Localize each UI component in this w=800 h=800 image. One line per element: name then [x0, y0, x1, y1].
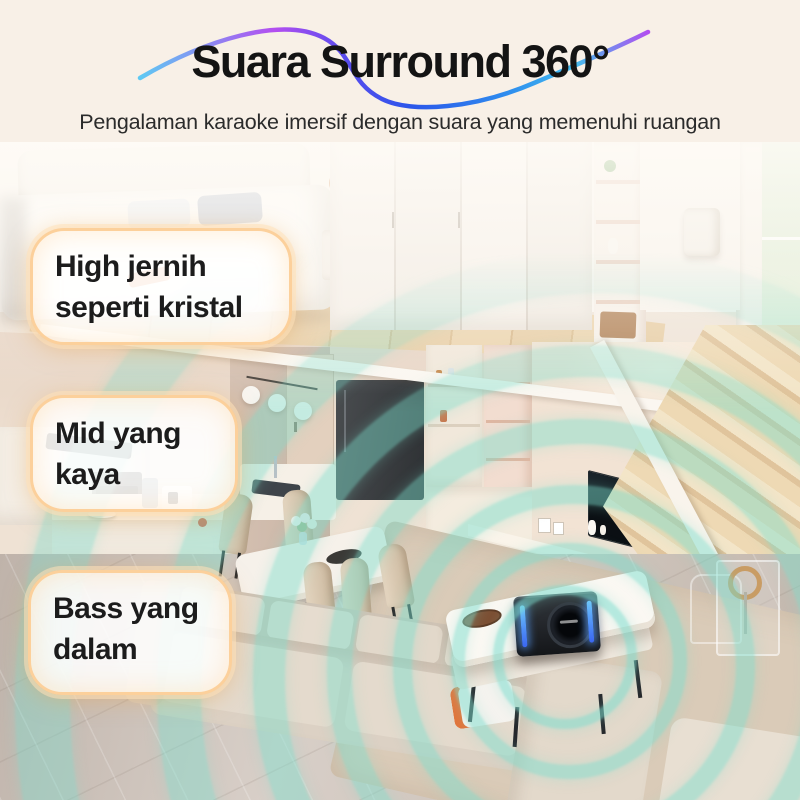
- subtitle: Pengalaman karaoke imersif dengan suara …: [0, 110, 800, 135]
- curtain-blur: [0, 197, 26, 322]
- pendant-bulb: [242, 386, 260, 404]
- photo-frame: [553, 522, 564, 535]
- refrigerator: [336, 380, 424, 500]
- speaker-led-strip: [520, 605, 528, 647]
- decor-vase: [588, 520, 596, 535]
- badge-line: kaya: [55, 455, 217, 496]
- shelf-vase: [608, 238, 618, 254]
- badge-line: seperti kristal: [55, 288, 271, 329]
- door-handle: [294, 422, 297, 432]
- shelf-plant: [604, 160, 616, 172]
- pendant-bulb: [268, 394, 286, 412]
- flower-bouquet: [291, 516, 301, 526]
- shelf-board: [596, 260, 642, 264]
- page: Suara Surround 360° Pengalaman karaoke i…: [0, 0, 800, 800]
- flower-vase: [299, 532, 307, 545]
- pantry-shelves: [426, 345, 482, 487]
- window-mullion: [760, 237, 800, 240]
- faucet: [274, 456, 277, 478]
- feature-badge-mid: Mid yang kaya: [30, 395, 238, 512]
- pink-pantry-board: [486, 420, 530, 423]
- feature-badge-high: High jernih seperti kristal: [30, 228, 292, 345]
- wardrobe: [330, 142, 592, 330]
- badge-line: dalam: [53, 630, 211, 671]
- apple: [198, 518, 207, 527]
- pink-pantry-board: [486, 458, 530, 461]
- pendant-bulb: [294, 402, 312, 420]
- laundry-basket: [684, 208, 720, 256]
- bed-pillow: [127, 198, 190, 229]
- bed-pillow: [197, 192, 263, 226]
- shelf-board: [596, 300, 642, 304]
- pantry-jar: [440, 410, 447, 422]
- badge-line: Bass yang: [53, 589, 211, 630]
- pantry-board: [428, 424, 480, 427]
- karaoke-speaker: [513, 591, 601, 657]
- fridge-handle: [344, 390, 346, 452]
- decor-vase: [600, 525, 606, 535]
- shelf-board: [596, 180, 642, 184]
- wardrobe-handle: [392, 212, 394, 228]
- gold-lamp-stem: [744, 592, 747, 634]
- feature-badge-bass: Bass yang dalam: [28, 570, 232, 695]
- badge-line: Mid yang: [55, 414, 217, 455]
- page-title: Suara Surround 360°: [0, 36, 800, 88]
- shelf-board: [596, 220, 642, 224]
- wardrobe-handle: [458, 212, 460, 228]
- badge-line: High jernih: [55, 247, 271, 288]
- shelf-box: [600, 311, 637, 338]
- photo-frame: [538, 518, 551, 533]
